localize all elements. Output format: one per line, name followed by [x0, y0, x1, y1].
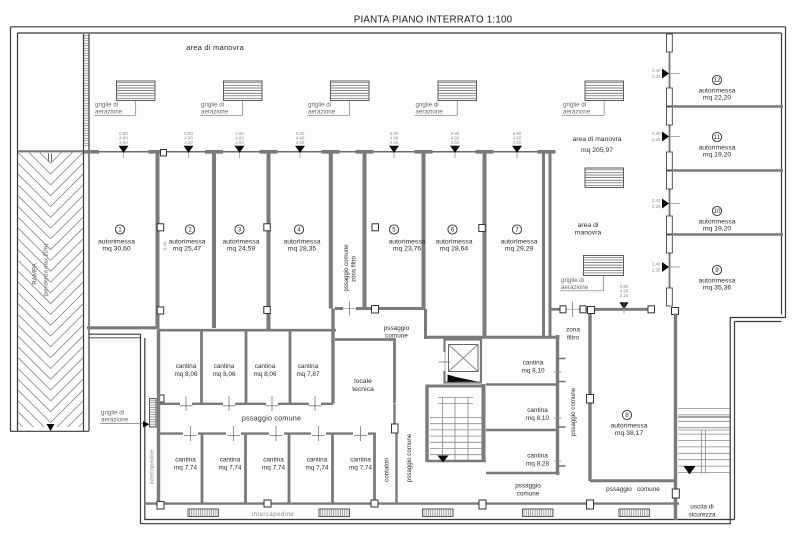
- svg-text:pssaggio comune: pssaggio comune: [242, 413, 301, 422]
- svg-text:pssaggio comune: pssaggio comune: [606, 486, 660, 493]
- svg-text:mq 7,74: mq 7,74: [174, 464, 198, 471]
- svg-text:griglie di: griglie di: [95, 102, 118, 109]
- svg-text:cantina: cantina: [298, 363, 319, 370]
- svg-text:area di: area di: [578, 222, 599, 229]
- svg-text:mq 22,20: mq 22,20: [703, 95, 732, 102]
- svg-text:2.50: 2.50: [451, 140, 460, 145]
- svg-text:griglie di: griglie di: [201, 102, 224, 109]
- svg-text:2.20: 2.20: [652, 268, 661, 273]
- svg-text:RAMPA: RAMPA: [32, 262, 39, 284]
- svg-text:1: 1: [118, 227, 122, 234]
- svg-text:mq 35,36: mq 35,36: [703, 285, 732, 292]
- svg-text:cantina: cantina: [527, 407, 548, 414]
- svg-text:griglie di: griglie di: [101, 410, 124, 417]
- svg-text:comune: comune: [385, 333, 408, 340]
- svg-text:mq 7,74: mq 7,74: [262, 464, 286, 471]
- svg-text:zona filtro: zona filtro: [352, 255, 358, 282]
- svg-text:aerazione: aerazione: [416, 109, 444, 116]
- svg-text:autorimessa: autorimessa: [698, 88, 735, 95]
- svg-text:autorimessa: autorimessa: [698, 145, 735, 152]
- svg-text:cantina: cantina: [523, 360, 544, 367]
- svg-text:mq 19,20: mq 19,20: [703, 226, 732, 233]
- svg-text:autorimessa: autorimessa: [698, 219, 735, 226]
- svg-text:pssaggio: pssaggio: [384, 325, 410, 332]
- svg-text:mq 30,60: mq 30,60: [102, 246, 131, 253]
- svg-text:2.20: 2.20: [652, 74, 661, 79]
- svg-text:mq 38,17: mq 38,17: [615, 430, 644, 437]
- svg-text:griglie di: griglie di: [563, 102, 586, 109]
- svg-text:aerazione: aerazione: [563, 109, 591, 116]
- svg-text:aerazione: aerazione: [201, 109, 229, 116]
- svg-text:cantina: cantina: [263, 457, 284, 464]
- svg-text:2.50: 2.50: [390, 140, 399, 145]
- svg-text:2.50: 2.50: [184, 140, 193, 145]
- svg-text:2.20: 2.20: [652, 204, 661, 209]
- svg-text:2.40: 2.40: [652, 262, 661, 267]
- svg-text:6: 6: [451, 227, 455, 234]
- svg-text:pssaggio comune: pssaggio comune: [570, 387, 577, 436]
- svg-text:area di manovra: area di manovra: [186, 43, 244, 52]
- svg-text:8: 8: [625, 412, 629, 419]
- svg-text:mq 8,06: mq 8,06: [212, 371, 236, 378]
- svg-text:cantina: cantina: [175, 457, 196, 464]
- svg-text:cantina: cantina: [307, 457, 328, 464]
- svg-text:autorimessa: autorimessa: [168, 239, 205, 246]
- svg-text:2.50: 2.50: [235, 140, 244, 145]
- svg-text:filtro: filtro: [567, 335, 580, 342]
- svg-text:mq 7,87: mq 7,87: [296, 371, 320, 378]
- svg-text:mq 19,20: mq 19,20: [703, 152, 732, 159]
- svg-text:autorimessa: autorimessa: [98, 239, 135, 246]
- svg-text:cantina: cantina: [255, 363, 276, 370]
- svg-text:2.50: 2.50: [296, 140, 305, 145]
- svg-text:autorimessa: autorimessa: [500, 239, 537, 246]
- svg-text:3: 3: [238, 227, 242, 234]
- svg-text:autorimessa: autorimessa: [610, 423, 647, 430]
- svg-text:mq 8,28: mq 8,28: [526, 460, 550, 467]
- svg-text:intercapedine: intercapedine: [150, 450, 156, 485]
- svg-text:2.20: 2.20: [652, 137, 661, 142]
- svg-text:intercapedine: intercapedine: [252, 512, 295, 518]
- svg-text:2.40: 2.40: [652, 68, 661, 73]
- svg-text:PIANTA PIANO INTERRATO 1:100: PIANTA PIANO INTERRATO 1:100: [354, 15, 513, 26]
- svg-text:2.50: 2.50: [119, 140, 128, 145]
- svg-text:locale: locale: [354, 378, 372, 385]
- svg-text:autorimessa: autorimessa: [283, 239, 320, 246]
- svg-text:10: 10: [714, 208, 721, 215]
- svg-text:cantina: cantina: [527, 453, 548, 460]
- svg-text:9: 9: [715, 267, 719, 274]
- svg-text:autorimessa: autorimessa: [222, 239, 259, 246]
- svg-text:mq 8,10: mq 8,10: [521, 367, 545, 374]
- svg-text:aerazione: aerazione: [95, 109, 123, 116]
- svg-text:9.00: 9.00: [163, 241, 168, 250]
- svg-text:4: 4: [297, 227, 301, 234]
- svg-text:pssaggio: pssaggio: [515, 483, 541, 490]
- svg-text:mq 7,74: mq 7,74: [218, 464, 242, 471]
- svg-text:griglie di: griglie di: [561, 277, 584, 284]
- svg-text:cantina: cantina: [214, 363, 235, 370]
- svg-text:2: 2: [188, 227, 192, 234]
- svg-text:pssaggio comune: pssaggio comune: [344, 244, 350, 292]
- svg-text:cantina: cantina: [176, 363, 197, 370]
- svg-text:griglie di: griglie di: [308, 102, 331, 109]
- svg-text:mq 29,29: mq 29,29: [505, 246, 534, 253]
- svg-text:11: 11: [714, 134, 721, 141]
- svg-text:5: 5: [392, 227, 396, 234]
- svg-text:7: 7: [515, 227, 519, 234]
- svg-text:aerazione: aerazione: [101, 417, 129, 424]
- svg-text:2.50: 2.50: [513, 140, 522, 145]
- svg-text:mq 28,35: mq 28,35: [288, 246, 317, 253]
- svg-text:mq 7,74: mq 7,74: [349, 464, 373, 471]
- svg-text:12: 12: [714, 77, 721, 84]
- svg-text:contatori: contatori: [384, 458, 391, 482]
- svg-text:tecnica: tecnica: [352, 386, 374, 393]
- svg-text:mq 8,06: mq 8,06: [253, 371, 277, 378]
- svg-text:mq 7,74: mq 7,74: [305, 464, 329, 471]
- svg-text:manovra: manovra: [575, 230, 602, 237]
- svg-text:autorimessa: autorimessa: [698, 278, 735, 285]
- svg-text:griglie di: griglie di: [416, 102, 439, 109]
- svg-text:aerazione: aerazione: [561, 284, 589, 291]
- svg-text:mq 8,10: mq 8,10: [526, 415, 550, 422]
- svg-text:comune: comune: [517, 491, 540, 498]
- svg-text:mq 205,97: mq 205,97: [581, 147, 613, 154]
- svg-text:(pendenza max 20%): (pendenza max 20%): [44, 243, 50, 296]
- svg-text:autorimessa: autorimessa: [388, 239, 425, 246]
- svg-text:cantina: cantina: [350, 457, 371, 464]
- svg-text:mq 8,06: mq 8,06: [174, 371, 198, 378]
- svg-text:aerazione: aerazione: [308, 109, 336, 116]
- svg-text:mq 24,59: mq 24,59: [227, 246, 256, 253]
- svg-text:pssaggio comune: pssaggio comune: [406, 433, 413, 482]
- svg-text:autorimessa: autorimessa: [435, 239, 472, 246]
- svg-text:2.40: 2.40: [652, 131, 661, 136]
- svg-text:2.20: 2.20: [620, 293, 629, 298]
- svg-text:cantina: cantina: [220, 457, 241, 464]
- svg-text:mq 23,76: mq 23,76: [393, 246, 422, 253]
- svg-text:mq 25,47: mq 25,47: [173, 246, 202, 253]
- svg-text:2.40: 2.40: [652, 198, 661, 203]
- svg-text:mq 28,64: mq 28,64: [440, 246, 469, 253]
- svg-text:area di manovra: area di manovra: [572, 136, 621, 143]
- svg-text:uscita di: uscita di: [690, 504, 713, 511]
- svg-text:zona: zona: [566, 327, 580, 334]
- svg-text:sicurezza: sicurezza: [689, 512, 716, 519]
